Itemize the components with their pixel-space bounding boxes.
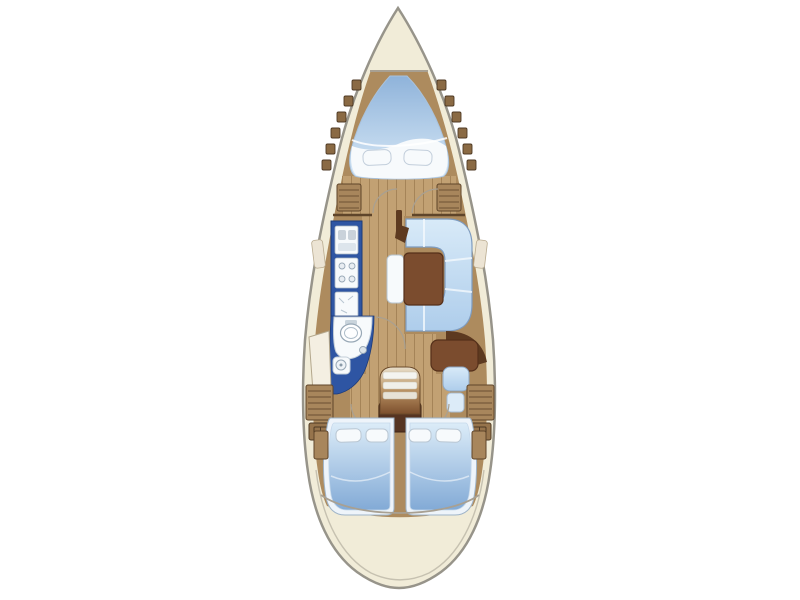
- step-treads: [383, 372, 417, 399]
- v-berth-pillow: [363, 149, 392, 165]
- v-berth-pillow: [404, 149, 433, 165]
- pillow: [336, 429, 361, 443]
- side-trim: [314, 431, 328, 459]
- yacht-floor-plan: [0, 0, 800, 600]
- galley-stove: [335, 258, 358, 288]
- nav-seat: [443, 367, 469, 391]
- side-hatch: [326, 144, 335, 154]
- side-hatch: [467, 160, 476, 170]
- slatted-locker-port: [306, 385, 333, 420]
- shower-drain: [360, 347, 367, 354]
- chart-table: [431, 340, 478, 371]
- side-hatch: [352, 80, 361, 90]
- side-hatch: [331, 128, 340, 138]
- salon-table: [404, 253, 443, 305]
- side-hatch: [337, 112, 346, 122]
- wardrobe: [309, 331, 331, 392]
- side-trim: [472, 431, 486, 459]
- side-hatch: [322, 160, 331, 170]
- galley-worktop: [335, 292, 358, 318]
- galley: [331, 221, 362, 320]
- side-hatch: [452, 112, 461, 122]
- slatted-locker-starboard: [467, 385, 494, 420]
- nav-step: [447, 393, 464, 412]
- hanging-locker-port: [337, 184, 361, 211]
- side-hatch: [458, 128, 467, 138]
- hanging-locker-starboard: [437, 184, 461, 211]
- salon-bench: [387, 255, 404, 303]
- yacht-floor-plan-canvas: [0, 0, 800, 600]
- pillow: [436, 429, 461, 443]
- pillow: [366, 429, 388, 442]
- wash-basin: [333, 357, 350, 374]
- side-hatch: [463, 144, 472, 154]
- galley-sink: [335, 226, 358, 254]
- pillow: [409, 429, 431, 442]
- side-hatch: [437, 80, 446, 90]
- side-hatch: [344, 96, 353, 106]
- side-hatch: [445, 96, 454, 106]
